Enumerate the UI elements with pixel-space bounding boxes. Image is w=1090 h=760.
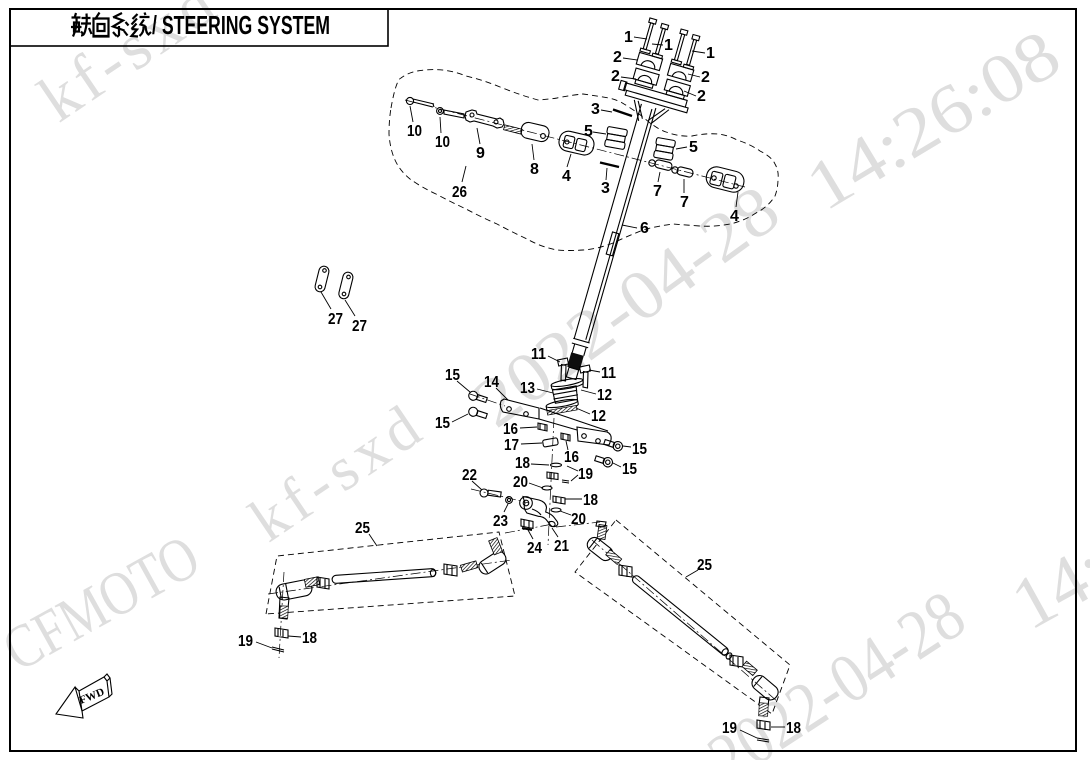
svg-text:27: 27 xyxy=(352,318,367,335)
svg-text:19: 19 xyxy=(578,466,593,483)
svg-text:18: 18 xyxy=(302,630,317,647)
svg-text:27: 27 xyxy=(328,311,343,328)
svg-text:9: 9 xyxy=(476,145,485,162)
svg-text:20: 20 xyxy=(513,474,528,491)
svg-text:1: 1 xyxy=(706,45,715,62)
svg-text:26: 26 xyxy=(452,184,467,201)
svg-text:20: 20 xyxy=(571,511,586,528)
svg-text:6: 6 xyxy=(640,220,649,237)
svg-text:7: 7 xyxy=(680,194,689,211)
svg-text:11: 11 xyxy=(601,365,616,382)
svg-text:16: 16 xyxy=(564,449,579,466)
svg-text:1: 1 xyxy=(664,37,673,54)
svg-text:2: 2 xyxy=(613,49,622,66)
svg-text:25: 25 xyxy=(355,520,370,537)
svg-text:18: 18 xyxy=(583,492,598,509)
svg-text:4: 4 xyxy=(562,168,571,185)
svg-text:8: 8 xyxy=(530,161,539,178)
svg-text:11: 11 xyxy=(531,346,546,363)
svg-text:7: 7 xyxy=(653,183,662,200)
svg-text:/ STEERING SYSTEM: / STEERING SYSTEM xyxy=(152,10,330,40)
svg-text:10: 10 xyxy=(407,123,422,140)
svg-text:5: 5 xyxy=(584,123,593,140)
svg-text:15: 15 xyxy=(622,461,637,478)
svg-text:23: 23 xyxy=(493,513,508,530)
svg-text:12: 12 xyxy=(591,408,606,425)
svg-text:12: 12 xyxy=(597,387,612,404)
svg-text:4: 4 xyxy=(730,208,739,225)
svg-text:15: 15 xyxy=(435,415,450,432)
svg-text:10: 10 xyxy=(435,134,450,151)
svg-text:18: 18 xyxy=(786,720,801,737)
svg-text:13: 13 xyxy=(520,380,535,397)
svg-text:2: 2 xyxy=(611,68,620,85)
svg-text:1: 1 xyxy=(624,29,633,46)
svg-text:25: 25 xyxy=(697,557,712,574)
svg-text:19: 19 xyxy=(722,720,737,737)
svg-text:5: 5 xyxy=(689,139,698,156)
svg-text:2: 2 xyxy=(701,69,710,86)
svg-text:19: 19 xyxy=(238,633,253,650)
svg-text:16: 16 xyxy=(503,421,518,438)
svg-text:2: 2 xyxy=(697,88,706,105)
svg-text:24: 24 xyxy=(527,540,542,557)
svg-text:17: 17 xyxy=(504,437,519,454)
svg-text:15: 15 xyxy=(632,441,647,458)
svg-text:22: 22 xyxy=(462,467,477,484)
svg-text:3: 3 xyxy=(591,101,600,118)
svg-text:3: 3 xyxy=(601,180,610,197)
svg-text:18: 18 xyxy=(515,455,530,472)
svg-text:21: 21 xyxy=(554,538,569,555)
